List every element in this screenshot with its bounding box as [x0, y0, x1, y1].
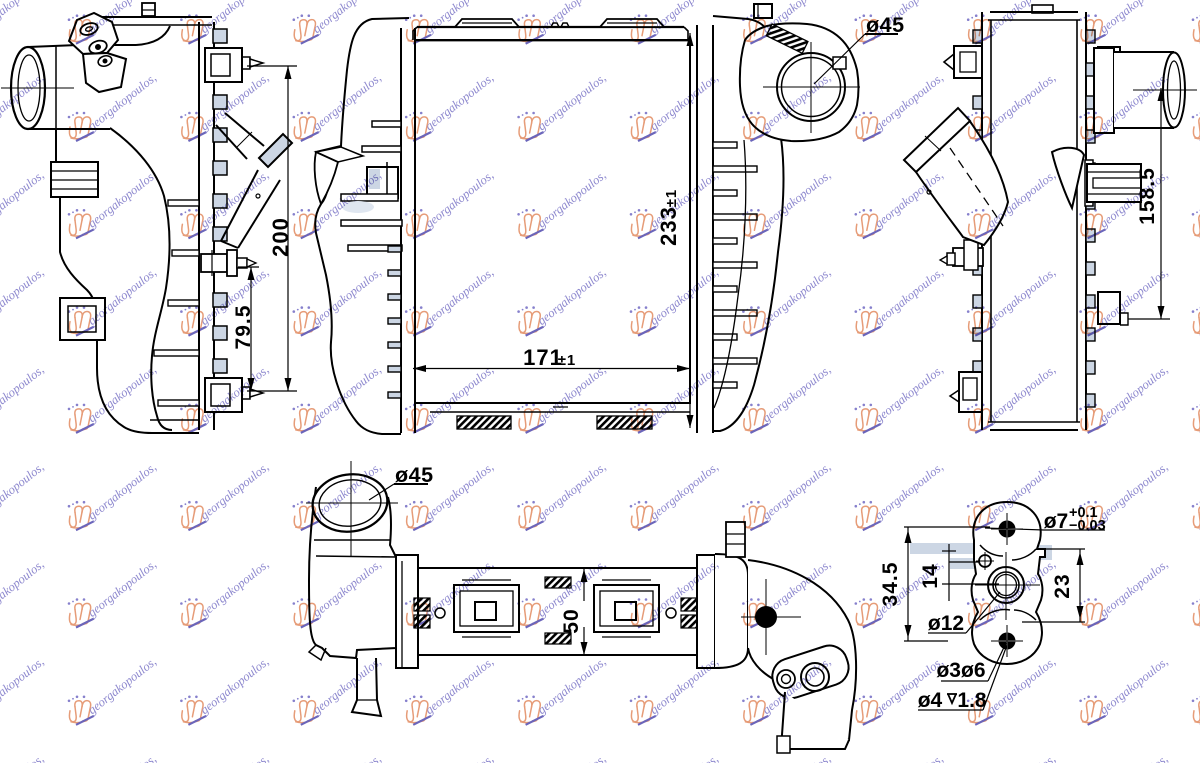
svg-text:200: 200: [268, 217, 293, 257]
svg-text:ø12: ø12: [928, 612, 964, 635]
svg-text:23: 23: [1051, 573, 1074, 598]
svg-text:ø4: ø4: [918, 689, 943, 712]
svg-text:79.5: 79.5: [232, 305, 255, 350]
svg-text:50: 50: [560, 608, 583, 633]
svg-text:1.8: 1.8: [957, 689, 987, 712]
svg-text:±1: ±1: [558, 352, 577, 369]
svg-text:ø3ø6: ø3ø6: [936, 659, 985, 682]
